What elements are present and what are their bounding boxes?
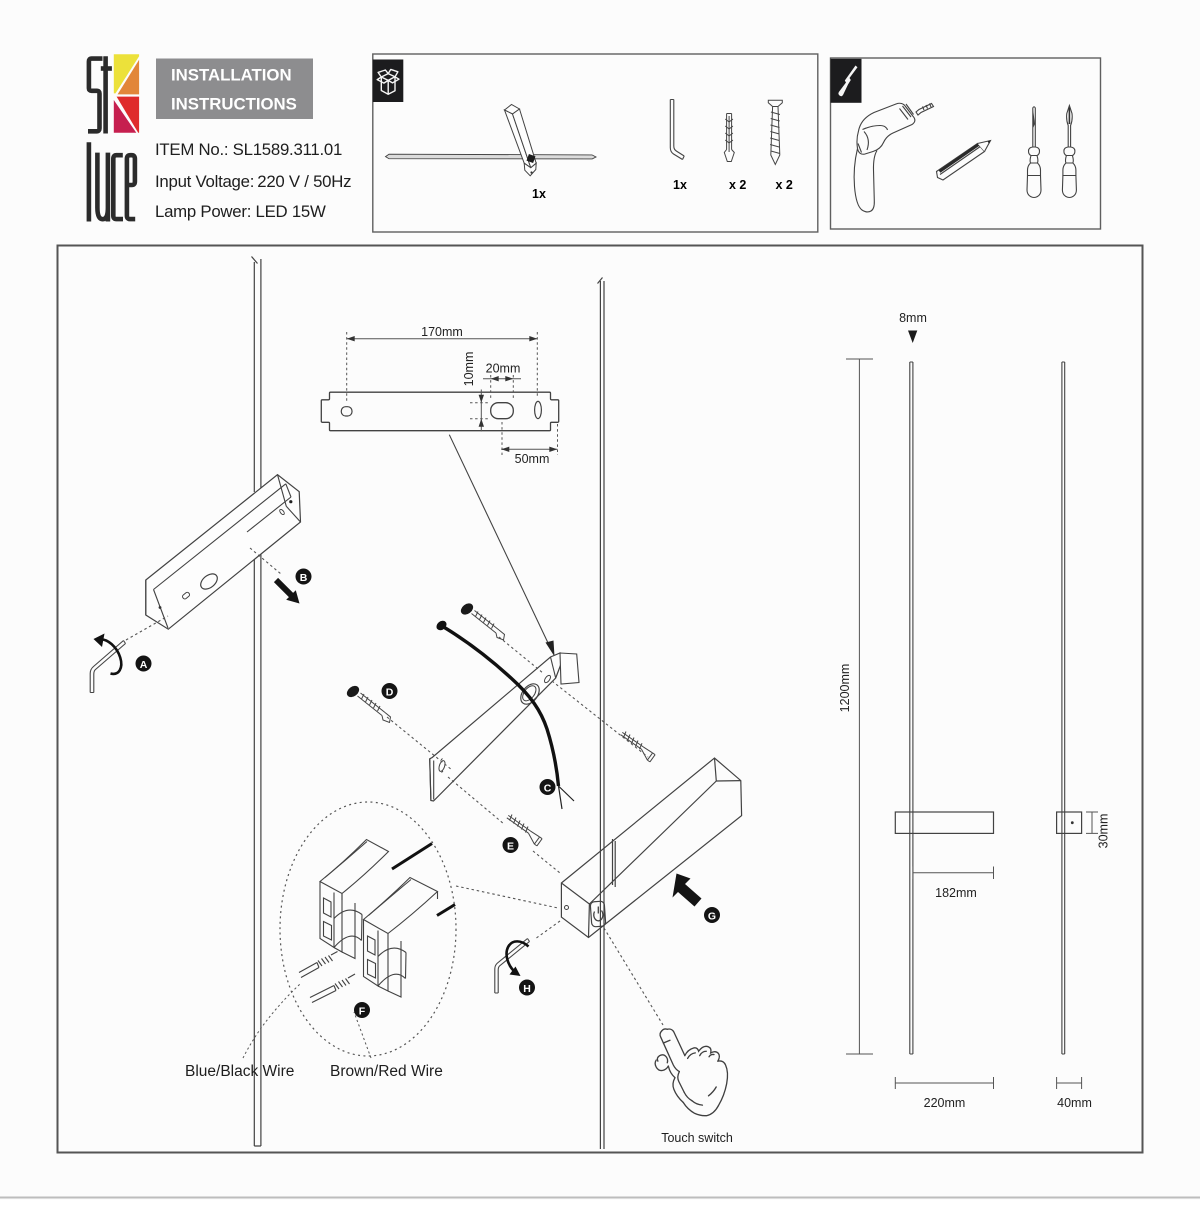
svg-text:Touch switch: Touch switch	[661, 1131, 733, 1145]
svg-text:40mm: 40mm	[1057, 1096, 1092, 1110]
svg-text:1x: 1x	[532, 187, 546, 201]
svg-text:E: E	[507, 841, 514, 853]
svg-text:A: A	[140, 659, 148, 671]
svg-text:Brown/Red Wire: Brown/Red Wire	[330, 1063, 443, 1080]
svg-text:20mm: 20mm	[486, 362, 521, 376]
svg-text:Lamp Power: LED 15W: Lamp Power: LED 15W	[155, 202, 326, 221]
svg-text:x 2: x 2	[729, 178, 746, 192]
svg-text:1x: 1x	[673, 178, 687, 192]
svg-text:220mm: 220mm	[924, 1096, 966, 1110]
svg-text:Input Voltage: 220 V / 50Hz: Input Voltage: 220 V / 50Hz	[155, 172, 351, 191]
svg-text:x 2: x 2	[776, 178, 793, 192]
svg-text:50mm: 50mm	[515, 452, 550, 466]
svg-text:10mm: 10mm	[462, 352, 476, 387]
svg-text:F: F	[359, 1006, 366, 1018]
svg-text:8mm: 8mm	[899, 311, 927, 325]
svg-text:G: G	[708, 911, 716, 923]
svg-text:182mm: 182mm	[935, 886, 977, 900]
svg-text:ITEM No.: SL1589.311.01: ITEM No.: SL1589.311.01	[155, 140, 342, 159]
svg-text:INSTALLATION: INSTALLATION	[171, 66, 292, 85]
svg-text:Blue/Black Wire: Blue/Black Wire	[185, 1063, 294, 1080]
svg-text:INSTRUCTIONS: INSTRUCTIONS	[171, 95, 297, 114]
svg-text:C: C	[544, 783, 552, 795]
svg-text:170mm: 170mm	[421, 325, 463, 339]
svg-text:D: D	[386, 687, 394, 699]
svg-text:H: H	[523, 983, 531, 995]
svg-text:30mm: 30mm	[1097, 814, 1111, 849]
svg-text:B: B	[300, 572, 308, 584]
svg-text:1200mm: 1200mm	[838, 664, 852, 713]
